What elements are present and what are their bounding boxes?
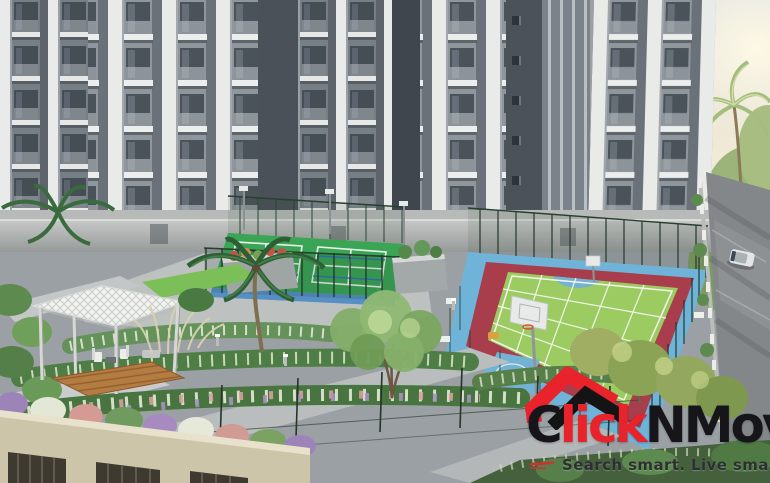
palm-planter — [392, 240, 448, 294]
tower-louvre — [542, 0, 590, 228]
multisport-court — [440, 208, 708, 452]
basketball-hoop-far — [586, 256, 600, 266]
apartment-towers — [0, 0, 716, 230]
tower-3 — [298, 0, 392, 224]
gazebo-shrub — [178, 288, 214, 312]
render-canvas — [0, 0, 770, 483]
tower-2 — [88, 0, 258, 220]
tower-1 — [0, 0, 88, 218]
court-lamp — [694, 312, 704, 318]
court-lamp — [440, 336, 450, 342]
tower-gap-1 — [258, 0, 298, 222]
tower-gap-2 — [392, 0, 420, 226]
tower-dark-side — [506, 0, 542, 228]
tower-4 — [420, 0, 506, 228]
scene-image: ClickNMove Search smart. Live smarter — [0, 0, 770, 483]
